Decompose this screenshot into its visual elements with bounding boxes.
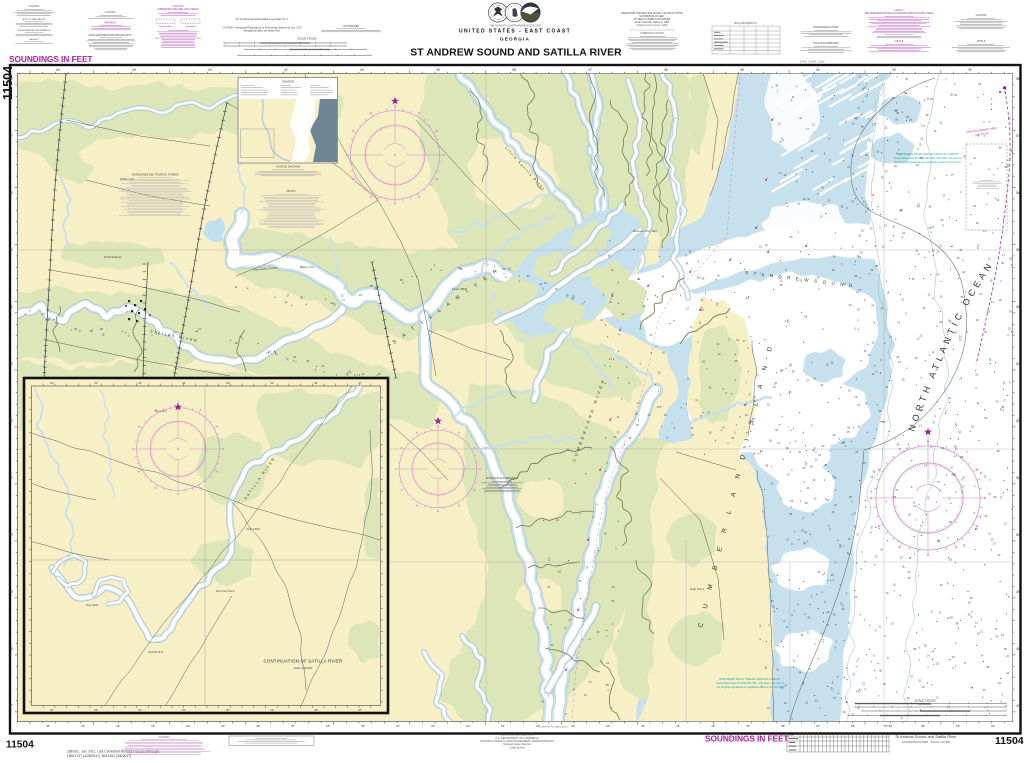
svg-text:Pipeline Area: Pipeline Area [159,25,173,28]
svg-text:56′: 56′ [9,191,14,195]
svg-text:47′: 47′ [9,704,14,708]
svg-text:44′: 44′ [56,68,61,72]
svg-text:52′: 52′ [9,419,14,423]
svg-text:51′: 51′ [182,381,186,385]
svg-text:52′: 52′ [138,708,142,712]
svg-text:47′: 47′ [358,708,362,712]
svg-text:51′: 51′ [9,476,14,480]
svg-text:White Oak: White Oak [120,177,135,181]
svg-text:High Point: High Point [690,587,704,591]
svg-text:UNITED STATES - EAST COAST: UNITED STATES - EAST COAST [459,29,571,35]
svg-text:39′: 39′ [221,724,225,728]
svg-text:44′: 44′ [571,724,575,728]
svg-text:50′: 50′ [226,381,230,385]
svg-text:37′: 37′ [588,68,593,72]
svg-text:11504: 11504 [1,66,15,100]
svg-text:36′: 36′ [851,724,855,728]
svg-text:For Regional regulations see a: For Regional regulations see applicable … [717,686,784,689]
svg-text:NOTE B: NOTE B [895,41,904,43]
svg-text:38′: 38′ [256,724,260,728]
svg-text:For Symbols and Abbreviations: For Symbols and Abbreviations see Chart … [236,18,289,21]
svg-text:47′: 47′ [1016,704,1021,708]
svg-text:NOTE A: NOTE A [895,9,904,12]
svg-text:48′: 48′ [314,381,318,385]
svg-text:32′: 32′ [991,724,995,728]
svg-text:39′: 39′ [746,724,750,728]
svg-text:SUBMARINE PIPELINES AND CABLES: SUBMARINE PIPELINES AND CABLES [157,8,199,11]
svg-text:Montcrief Island: Montcrief Island [216,589,235,593]
svg-text:42′: 42′ [208,68,213,72]
svg-text:40′: 40′ [186,724,190,728]
svg-text:34′: 34′ [816,68,821,72]
svg-text:48′: 48′ [1016,647,1021,651]
svg-text:48′: 48′ [314,708,318,712]
svg-text:58′: 58′ [9,77,14,81]
svg-text:Scale 1:40,000: Scale 1:40,000 [294,666,313,670]
svg-text:COMPILED IN CHART 11504: COMPILED IN CHART 11504 [539,726,569,729]
svg-text:Bailey Cut: Bailey Cut [300,265,314,269]
svg-text:42′: 42′ [116,724,120,728]
svg-text:41′: 41′ [676,724,680,728]
svg-text:NOAA WEATHER RADIO BROADCASTS: NOAA WEATHER RADIO BROADCASTS [89,34,132,37]
svg-text:38′: 38′ [781,724,785,728]
svg-text:35′: 35′ [740,68,745,72]
svg-text:33′: 33′ [431,724,435,728]
svg-text:53′: 53′ [94,708,98,712]
svg-text:34′: 34′ [921,724,925,728]
svg-text:WARNING: WARNING [104,22,116,25]
svg-text:48′: 48′ [9,647,14,651]
svg-text:Owens Bluff: Owens Bluff [246,527,260,531]
svg-text:42′: 42′ [641,724,645,728]
svg-text:SOURCE DIAGRAM: SOURCE DIAGRAM [276,165,300,169]
svg-text:49′: 49′ [270,708,274,712]
svg-text:36′: 36′ [664,68,669,72]
svg-text:HURRICANES AND TROPICAL STORMS: HURRICANES AND TROPICAL STORMS [132,174,179,177]
svg-text:50′: 50′ [1016,533,1021,537]
svg-text:Navigational lights are shown: Navigational lights are shown thus: [244,30,281,33]
svg-text:For Regional regulations see a: For Regional regulations see applicable … [895,161,962,164]
svg-text:POLLUTION REPORTS: POLLUTION REPORTS [813,42,839,45]
svg-text:50′: 50′ [226,708,230,712]
svg-text:31′: 31′ [501,724,505,728]
svg-text:43′: 43′ [132,68,137,72]
svg-text:11504: 11504 [6,740,34,751]
svg-text:54′: 54′ [50,381,54,385]
svg-text:SOUNDINGS IN FEET: SOUNDINGS IN FEET [9,54,93,64]
svg-text:Sandhill Bluff: Sandhill Bluff [148,650,163,654]
svg-text:40′: 40′ [711,724,715,728]
svg-text:54′: 54′ [50,708,54,712]
svg-text:St Andrew Sound and Satilla Ri: St Andrew Sound and Satilla River [895,734,957,739]
svg-text:54′: 54′ [9,305,14,309]
svg-text:SOUNDINGS IN FEET - SCALE 1:40: SOUNDINGS IN FEET - SCALE 1:40,000 [902,740,951,744]
svg-text:55′: 55′ [9,248,14,252]
svg-text:53′: 53′ [9,362,14,366]
svg-text:INTRACOASTAL WATERWAY: INTRACOASTAL WATERWAY [486,477,519,480]
svg-text:LNM 1717 (4/25/2017), NM 1817: LNM 1717 (4/25/2017), NM 1817 (5/6/2017) [67,754,131,758]
svg-text:(World Geodetic System 1984): (World Geodetic System 1984) [636,24,668,27]
svg-text:41′: 41′ [284,68,289,72]
svg-text:RECOMMENDED WHALE AVOIDANCE PR: RECOMMENDED WHALE AVOIDANCE PRECAUTIONAR… [865,12,934,15]
svg-text:40′: 40′ [360,68,365,72]
svg-text:NOTE S: NOTE S [977,41,986,43]
svg-text:49′: 49′ [9,590,14,594]
svg-text:58′: 58′ [1016,77,1021,81]
svg-text:11504: 11504 [995,735,1024,747]
svg-text:38′: 38′ [512,68,517,72]
svg-text:THE NATION'S CHARTMAKER SINCE: THE NATION'S CHARTMAKER SINCE 1807 [489,24,541,28]
svg-text:52′: 52′ [1016,419,1021,423]
svg-text:SUPPLEMENTAL INFORMATION: SUPPLEMENTAL INFORMATION [17,29,50,32]
svg-text:51′: 51′ [1016,476,1021,480]
svg-text:50′: 50′ [9,533,14,537]
svg-text:AUTHORITIES: AUTHORITIES [343,25,359,28]
svg-text:37′: 37′ [291,724,295,728]
svg-text:32′: 32′ [968,68,973,72]
svg-text:NORTHERN RIGHT WHALE CRITICAL: NORTHERN RIGHT WHALE CRITICAL HABITAT [897,152,959,156]
svg-text:57′: 57′ [9,134,14,138]
svg-text:Mays Bluff: Mays Bluff [86,603,98,607]
svg-text:HEIGHTS: HEIGHTS [29,39,39,41]
svg-text:North American Datum of 1983: North American Datum of 1983 [635,21,670,24]
svg-text:Dover Bluff: Dover Bluff [452,287,467,291]
svg-text:56′: 56′ [1016,191,1021,195]
svg-text:53′: 53′ [94,381,98,385]
svg-text:54′: 54′ [1016,305,1021,309]
svg-text:49′: 49′ [1016,590,1021,594]
svg-text:Raccoon Key Spit: Raccoon Key Spit [633,229,657,233]
svg-text:CAUTION: CAUTION [105,11,116,14]
svg-text:NOTE 5: NOTE 5 [286,190,296,193]
svg-text:43′: 43′ [81,724,85,728]
svg-text:GEORGIA: GEORGIA [500,37,530,42]
svg-text:CAUTION: CAUTION [173,5,184,8]
svg-text:55′: 55′ [1016,248,1021,252]
svg-text:33′: 33′ [956,724,960,728]
svg-text:39′: 39′ [436,68,441,72]
svg-text:53′: 53′ [1016,362,1021,366]
svg-text:32′: 32′ [466,724,470,728]
svg-text:NORTHERN RIGHT WHALE CRITICAL: NORTHERN RIGHT WHALE CRITICAL HABITAT [719,677,781,681]
svg-text:34′: 34′ [396,724,400,728]
svg-text:37′: 37′ [816,724,820,728]
svg-text:CAUTION: CAUTION [159,736,170,739]
svg-text:49′: 49′ [270,381,274,385]
svg-text:AIDS TO NAVIGATION: AIDS TO NAVIGATION [23,18,46,21]
svg-text:(boundaries area 50 CFR 226.2: (boundaries area 50 CFR 226.203c, 224.10… [894,156,961,160]
svg-text:Coast Survey: Coast Survey [509,745,525,749]
svg-text:51′: 51′ [182,708,186,712]
svg-text:SCALE 1:40,000: SCALE 1:40,000 [297,37,317,41]
svg-text:CAUTION: CAUTION [29,5,40,8]
svg-text:RADAR REFLECTORS: RADAR REFLECTORS [813,26,838,29]
svg-text:Cable Area: Cable Area [185,25,197,28]
svg-text:87°30′: 87°30′ [884,724,893,728]
svg-text:44′: 44′ [46,724,50,728]
svg-text:SOURCE: SOURCE [282,80,294,84]
svg-text:33′: 33′ [892,68,897,72]
svg-text:36′: 36′ [326,724,330,728]
svg-text:52′: 52′ [138,381,142,385]
svg-text:57′: 57′ [1016,134,1021,138]
svg-text:Todd Swamp: Todd Swamp [104,255,122,259]
svg-text:JOINS CHART 11506: JOINS CHART 11506 [800,60,825,64]
svg-text:47′: 47′ [358,381,362,385]
svg-text:TIDAL INFORMATION: TIDAL INFORMATION [734,22,757,25]
svg-text:HORIZONTAL DATUM: HORIZONTAL DATUM [640,32,663,35]
svg-text:41′: 41′ [151,724,155,728]
svg-text:ST ANDREW SOUND AND SATILLA RI: ST ANDREW SOUND AND SATILLA RIVER [410,48,622,59]
svg-text:SOUNDINGS IN FEET: SOUNDINGS IN FEET [705,734,789,744]
svg-text:CAUTION: CAUTION [976,14,987,17]
svg-text:SCALE 1:40,000: SCALE 1:40,000 [915,699,936,703]
svg-text:(boundaries area 50 CFR 226.2: (boundaries area 50 CFR 226.203c, 224.10… [716,681,783,685]
svg-text:43′: 43′ [606,724,610,728]
svg-text:35′: 35′ [361,724,365,728]
svg-text:CONTINUATION OF SATILLA RIV: CONTINUATION OF SATILLA RIVER [263,659,342,664]
